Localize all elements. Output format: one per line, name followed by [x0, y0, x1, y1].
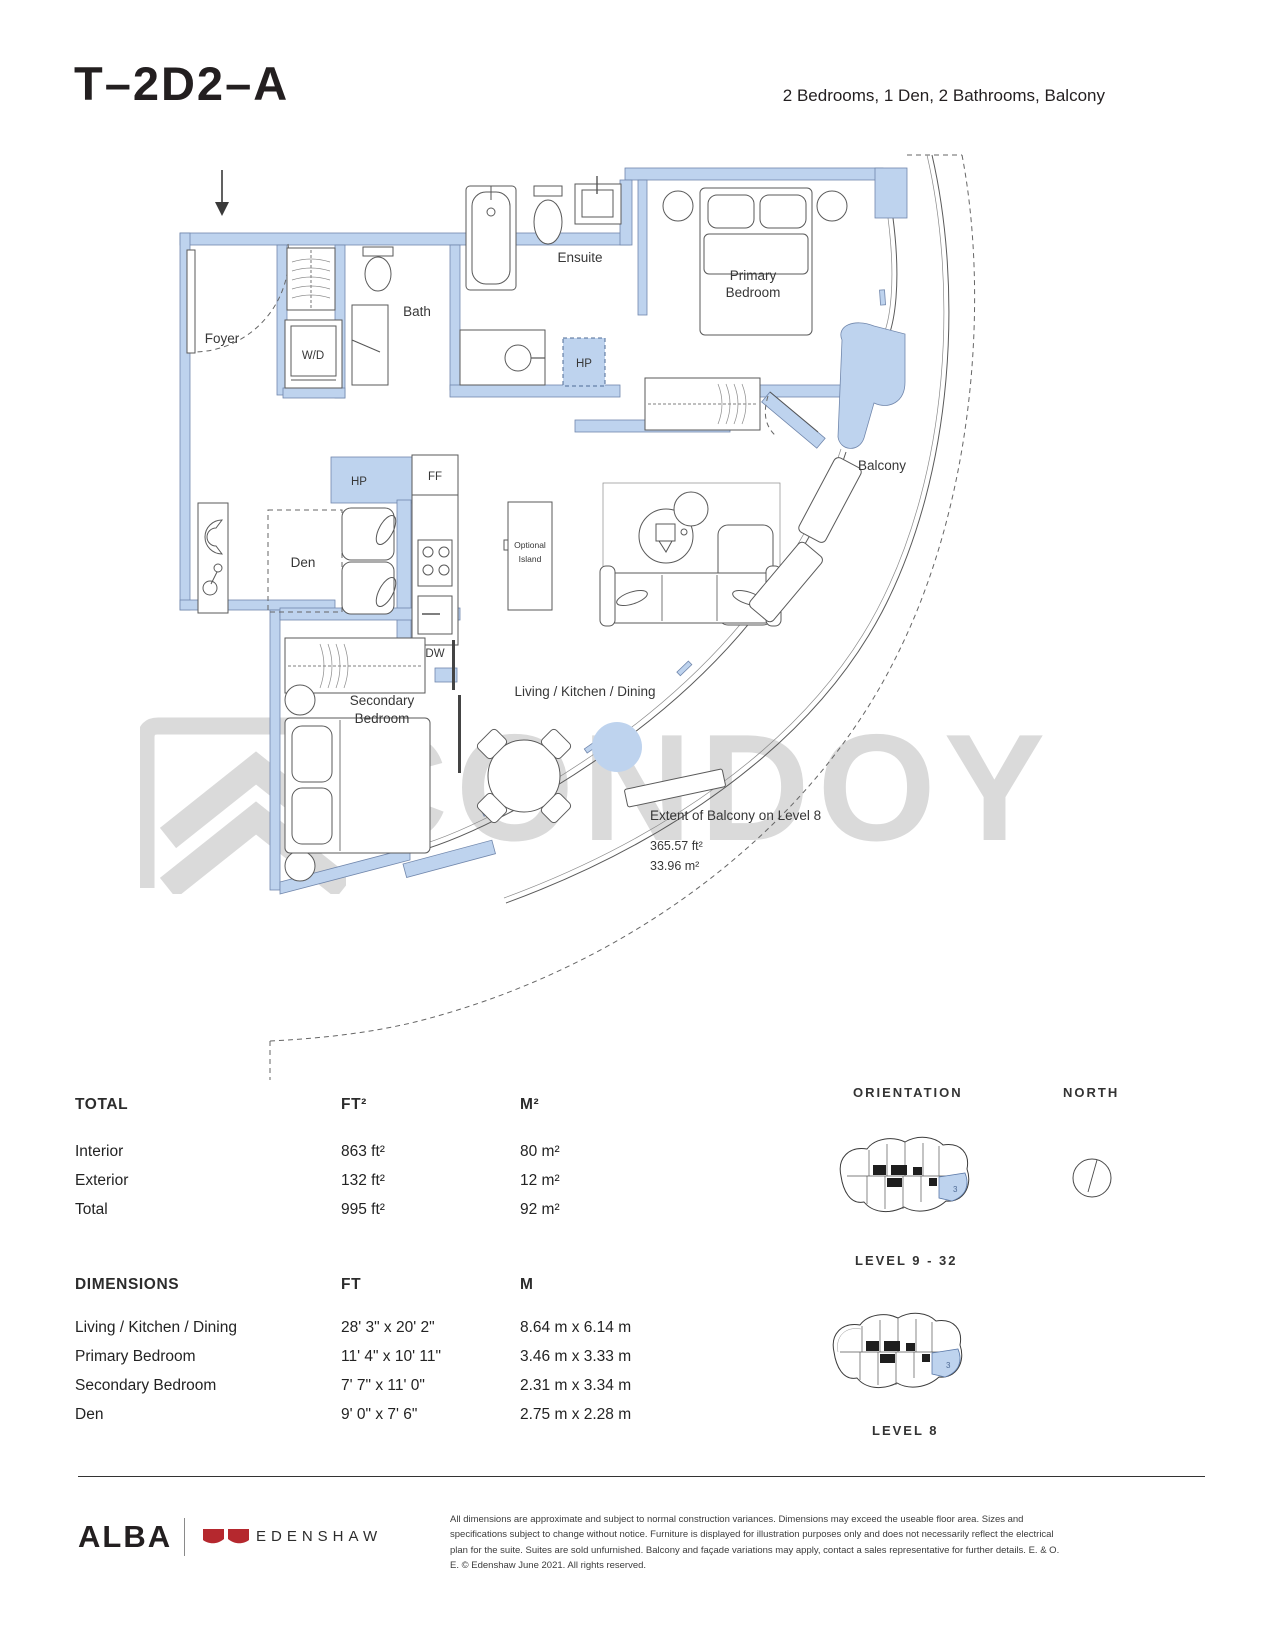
balcony-furniture	[624, 456, 863, 807]
dimensions-col-ft: FT	[341, 1276, 361, 1294]
north-label: NORTH	[1063, 1085, 1119, 1100]
label-wd: W/D	[302, 350, 324, 362]
disclaimer-text: All dimensions are approximate and subje…	[450, 1512, 1062, 1574]
label-living: Living / Kitchen / Dining	[514, 684, 655, 699]
label-foyer: Foyer	[205, 331, 240, 346]
total-row: Interior 863 ft² 80 m²	[75, 1143, 715, 1165]
dimension-label: Primary Bedroom	[75, 1348, 196, 1366]
alba-logo: ALBA	[78, 1519, 172, 1555]
dimension-label: Living / Kitchen / Dining	[75, 1319, 237, 1337]
label-secondary-2: Bedroom	[355, 711, 410, 726]
label-primary-2: Bedroom	[726, 285, 781, 300]
dimension-ft: 9' 0" x 7' 6"	[341, 1406, 417, 1424]
keyplan-unit-number: 3	[946, 1361, 951, 1370]
total-row: Exterior 132 ft² 12 m²	[75, 1172, 715, 1194]
label-bath: Bath	[403, 304, 431, 319]
dimension-ft: 28' 3" x 20' 2"	[341, 1319, 435, 1337]
floor-plan: Foyer W/D Bath Ensuite HP Primary Bedroo…	[170, 140, 1040, 1090]
totals-col-m: M²	[520, 1096, 539, 1114]
label-primary-1: Primary	[730, 268, 777, 283]
dimension-label: Secondary Bedroom	[75, 1377, 216, 1395]
total-ft: 863 ft²	[341, 1143, 385, 1161]
dimension-m: 3.46 m x 3.33 m	[520, 1348, 631, 1366]
total-ft: 132 ft²	[341, 1172, 385, 1190]
label-island-1: Optional	[514, 540, 546, 550]
dimension-ft: 7' 7" x 11' 0"	[341, 1377, 425, 1395]
totals-col-ft: FT²	[341, 1096, 367, 1114]
keyplan-level-8: 3	[822, 1306, 970, 1398]
totals-title: TOTAL	[75, 1096, 128, 1114]
label-island-2: Island	[519, 554, 542, 564]
label-den: Den	[291, 555, 316, 570]
dimension-ft: 11' 4" x 10' 11"	[341, 1348, 441, 1366]
dimension-m: 2.31 m x 3.34 m	[520, 1377, 631, 1395]
primary-bedroom-furniture	[645, 188, 847, 436]
label-hp-upper: HP	[576, 358, 592, 370]
label-ff: FF	[428, 471, 442, 483]
dimension-m: 8.64 m x 6.14 m	[520, 1319, 631, 1337]
edenshaw-wordmark: EDENSHAW	[256, 1528, 382, 1545]
label-dw: DW	[425, 648, 444, 660]
total-label: Exterior	[75, 1172, 128, 1190]
column	[592, 722, 642, 772]
page-title: T–2D2–A	[74, 56, 289, 111]
entry-arrow-icon	[215, 170, 229, 216]
brand-divider	[184, 1518, 185, 1556]
dimension-row: Secondary Bedroom 7' 7" x 11' 0" 2.31 m …	[75, 1377, 715, 1399]
total-row: Total 995 ft² 92 m²	[75, 1201, 715, 1223]
totals-header-row: TOTAL FT² M²	[75, 1096, 715, 1118]
total-label: Total	[75, 1201, 108, 1219]
keyplan-level-9-32: 3	[829, 1130, 977, 1222]
total-ft: 995 ft²	[341, 1201, 385, 1219]
floorplan-sheet: T–2D2–A 2 Bedrooms, 1 Den, 2 Bathrooms, …	[0, 0, 1275, 1650]
label-ensuite: Ensuite	[557, 250, 602, 265]
suite-summary: 2 Bedrooms, 1 Den, 2 Bathrooms, Balcony	[783, 86, 1105, 106]
keyplan-lower-caption: LEVEL 8	[872, 1423, 939, 1438]
label-secondary-1: Secondary	[350, 693, 415, 708]
dimensions-title: DIMENSIONS	[75, 1276, 179, 1294]
total-m: 80 m²	[520, 1143, 560, 1161]
footer-divider	[78, 1476, 1205, 1477]
dimension-row: Living / Kitchen / Dining 28' 3" x 20' 2…	[75, 1319, 715, 1341]
dining-set	[476, 728, 573, 825]
keyplan-unit-number: 3	[953, 1185, 958, 1194]
total-label: Interior	[75, 1143, 123, 1161]
label-balcony: Balcony	[858, 458, 906, 473]
label-hp-den: HP	[351, 476, 367, 488]
dimension-row: Den 9' 0" x 7' 6" 2.75 m x 2.28 m	[75, 1406, 715, 1428]
dimension-m: 2.75 m x 2.28 m	[520, 1406, 631, 1424]
keyplan-upper-caption: LEVEL 9 - 32	[855, 1253, 958, 1268]
dimensions-header-row: DIMENSIONS FT M	[75, 1276, 715, 1298]
total-m: 12 m²	[520, 1172, 560, 1190]
foyer-closet	[287, 248, 335, 310]
total-m: 92 m²	[520, 1201, 560, 1219]
dimension-label: Den	[75, 1406, 103, 1424]
label-extent-title: Extent of Balcony on Level 8	[650, 808, 821, 823]
north-compass-icon	[1062, 1148, 1124, 1210]
label-extent-ft: 365.57 ft²	[650, 839, 703, 853]
dimensions-col-m: M	[520, 1276, 534, 1294]
edenshaw-logo-icon	[202, 1526, 250, 1548]
dimension-row: Primary Bedroom 11' 4" x 10' 11" 3.46 m …	[75, 1348, 715, 1370]
kitchen	[412, 455, 552, 645]
label-extent-m: 33.96 m²	[650, 859, 699, 873]
